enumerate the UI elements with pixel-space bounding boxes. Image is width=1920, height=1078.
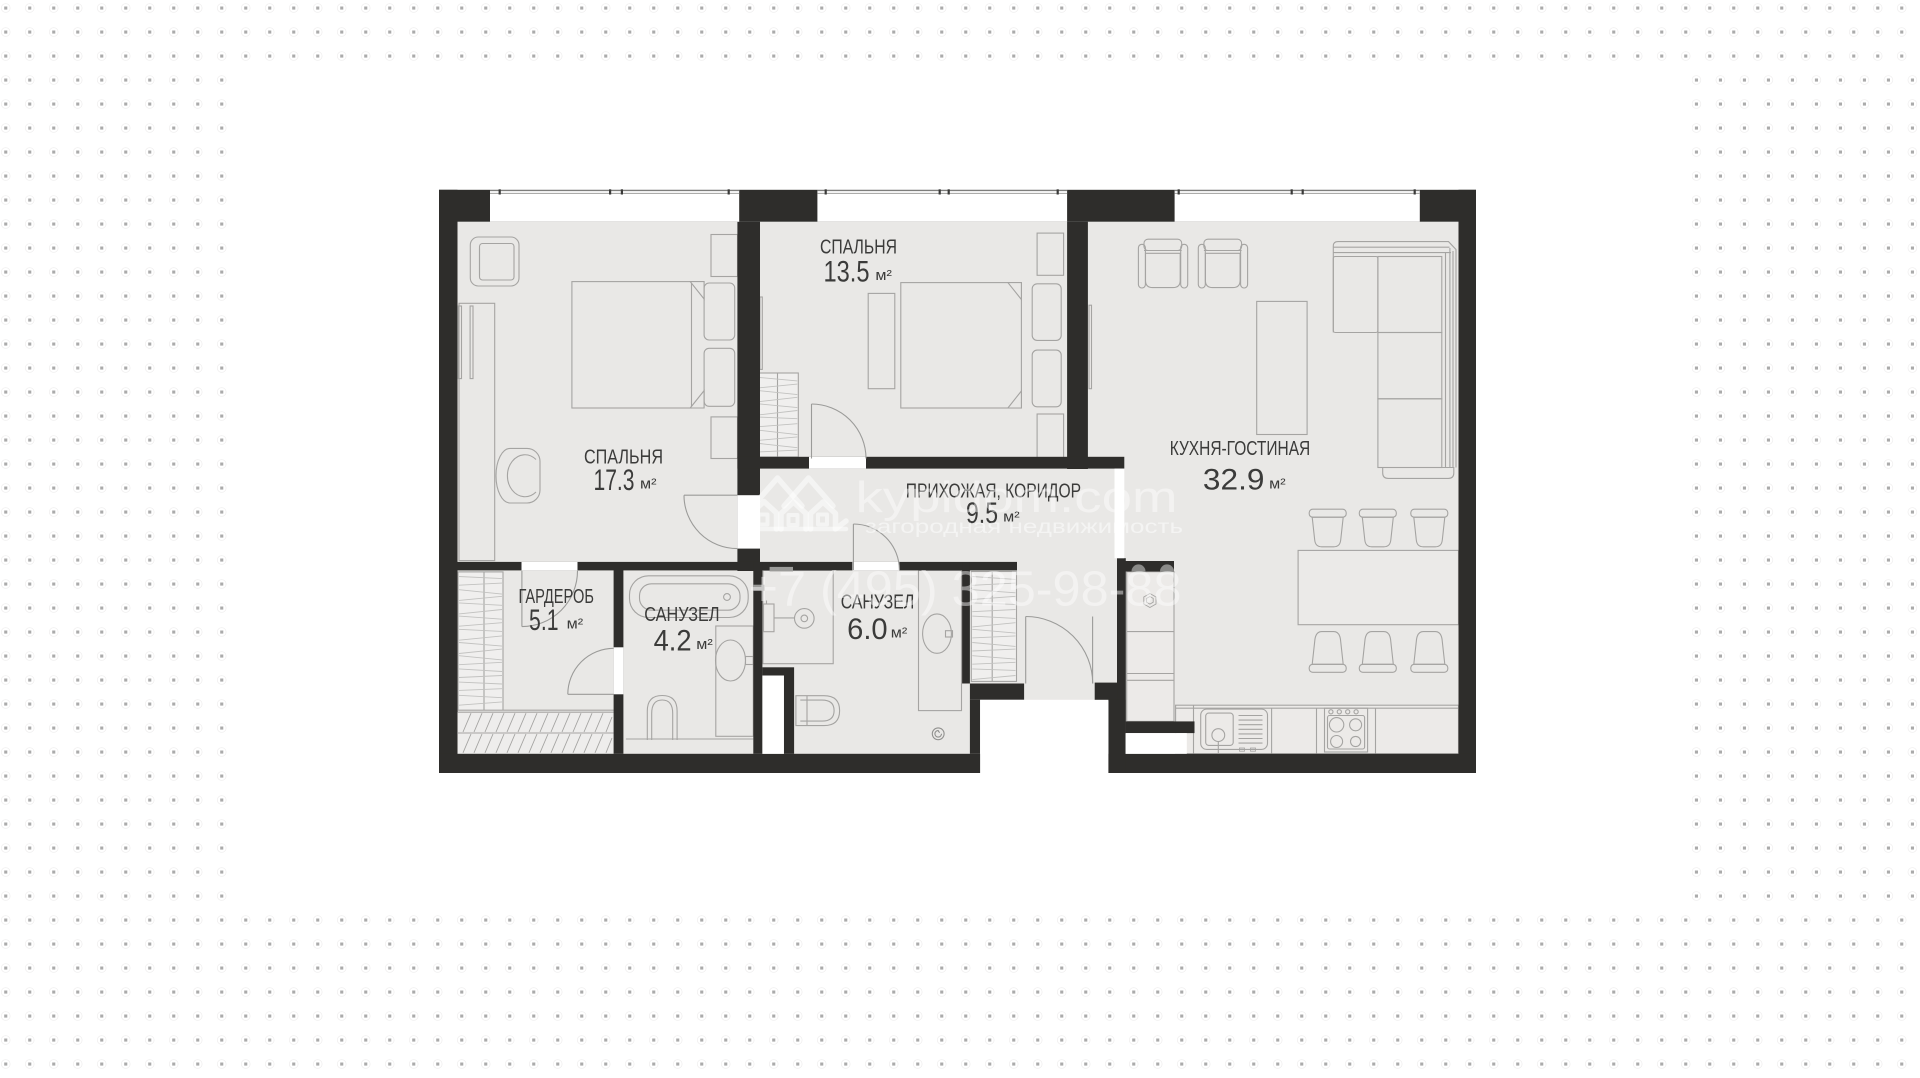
svg-text:м²: м² bbox=[891, 626, 908, 642]
svg-text:kypidom.com: kypidom.com bbox=[856, 473, 1178, 522]
svg-text:5.1: 5.1 bbox=[529, 604, 559, 637]
svg-text:м²: м² bbox=[567, 617, 584, 633]
svg-text:+7 (495) 325-98-88: +7 (495) 325-98-88 bbox=[749, 563, 1182, 617]
svg-text:6.0: 6.0 bbox=[847, 613, 888, 646]
svg-text:4.2: 4.2 bbox=[654, 625, 692, 658]
svg-text:м²: м² bbox=[696, 637, 713, 653]
svg-text:м²: м² bbox=[875, 268, 892, 284]
svg-text:загородная недвижимость: загородная недвижимость bbox=[865, 516, 1183, 538]
svg-text:17.3: 17.3 bbox=[594, 464, 635, 497]
svg-text:13.5: 13.5 bbox=[824, 255, 870, 288]
svg-text:САНУЗЕЛ: САНУЗЕЛ bbox=[644, 604, 719, 626]
svg-text:32.9: 32.9 bbox=[1203, 464, 1265, 497]
svg-text:м²: м² bbox=[640, 476, 657, 492]
svg-text:м²: м² bbox=[1269, 476, 1286, 492]
svg-text:КУХНЯ-ГОСТИНАЯ: КУХНЯ-ГОСТИНАЯ bbox=[1170, 437, 1311, 460]
